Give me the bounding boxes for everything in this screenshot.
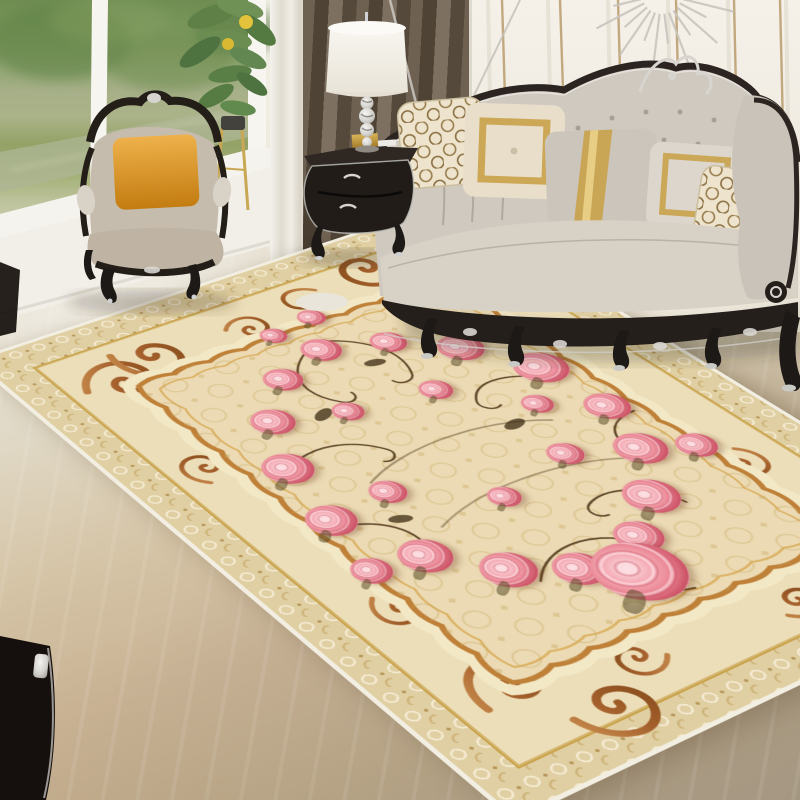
lamp-shade-top — [328, 21, 406, 35]
lamp-shade-bottom — [326, 92, 408, 97]
living-room-scene — [0, 0, 800, 800]
foreground-chair-leg — [0, 636, 55, 800]
leg-silver-clasp — [33, 653, 49, 678]
dark-furniture-sliver — [0, 262, 20, 336]
furniture-layer — [0, 0, 800, 800]
curtain-puddle — [296, 293, 348, 311]
rail-silver-carving — [144, 267, 160, 274]
sofa-right-arm — [732, 95, 798, 303]
armchair — [75, 93, 233, 304]
pillow-gold-sash — [544, 128, 659, 226]
lamp-shade — [326, 28, 408, 92]
orange-pillow — [112, 134, 200, 210]
small-book — [378, 139, 396, 146]
table-lamp — [326, 12, 408, 153]
lemon-fruit — [222, 38, 234, 50]
nightstand — [304, 133, 418, 260]
crest-silver-shell — [147, 93, 161, 103]
lemon-fruit — [239, 15, 253, 29]
